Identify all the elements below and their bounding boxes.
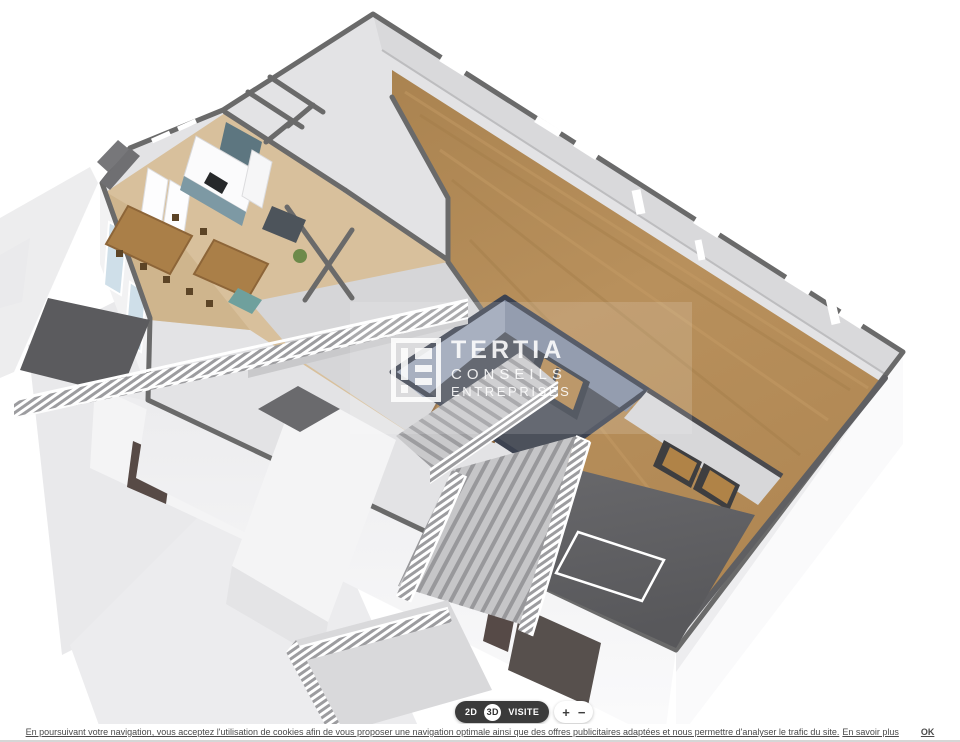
- floorplan-3d-view[interactable]: [0, 0, 960, 742]
- zoom-in-button[interactable]: +: [562, 706, 570, 719]
- mode-3d-button[interactable]: 3D: [484, 704, 501, 721]
- floorplan-viewer: TERTIA CONSEILS ENTREPRISES 2D 3D VISITE…: [0, 0, 960, 742]
- cookie-banner: En poursuivant votre navigation, vous ac…: [0, 724, 960, 742]
- zoom-out-button[interactable]: −: [578, 706, 586, 719]
- cookie-ok-button[interactable]: OK: [921, 727, 935, 737]
- mode-2d-button[interactable]: 2D: [465, 707, 477, 717]
- cookie-more-link[interactable]: En savoir plus: [842, 727, 899, 737]
- view-mode-pill: 2D 3D VISITE: [455, 701, 549, 723]
- view-toolbar: 2D 3D VISITE + −: [455, 701, 593, 723]
- visite-button[interactable]: VISITE: [508, 707, 539, 717]
- cookie-message: En poursuivant votre navigation, vous ac…: [26, 727, 840, 737]
- zoom-pill: + −: [554, 701, 593, 723]
